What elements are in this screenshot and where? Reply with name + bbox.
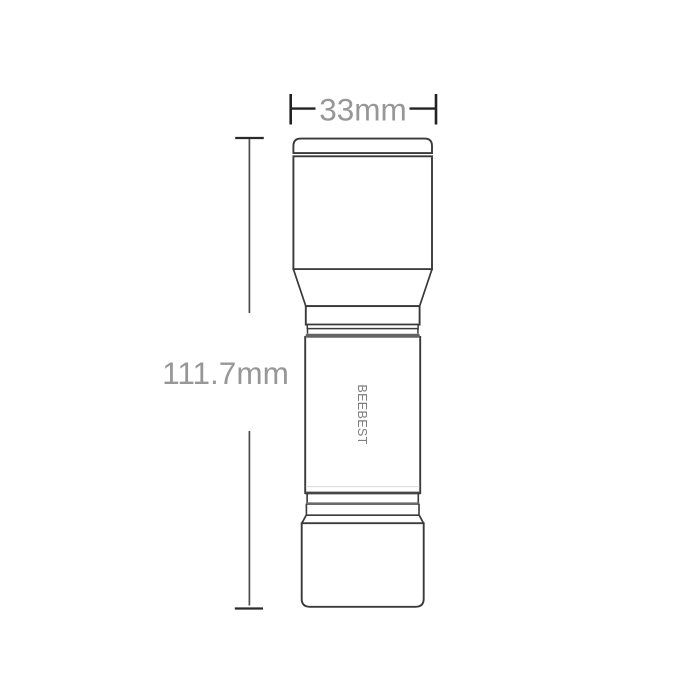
svg-text:33mm: 33mm [319, 92, 407, 128]
svg-text:111.7mm: 111.7mm [162, 355, 289, 391]
svg-text:BEEBEST: BEEBEST [355, 384, 369, 444]
